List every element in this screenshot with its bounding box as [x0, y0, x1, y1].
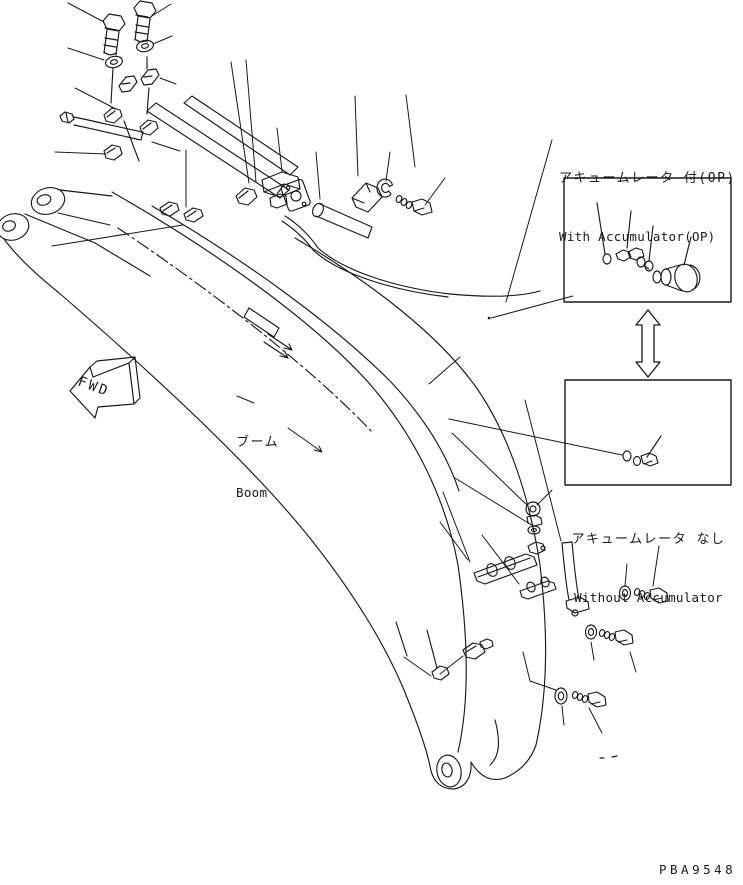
- without-accumulator-caption-ja: アキュームレータ なし: [565, 532, 732, 549]
- parts-diagram-page: FWD アキュームレータ 付(OP) With Accumulator(OP) …: [0, 0, 743, 885]
- plug: [634, 453, 659, 466]
- boom-caption-en: Boom: [236, 485, 279, 501]
- with-accumulator-caption-en: With Accumulator(OP): [559, 229, 736, 245]
- o-ring: [623, 451, 631, 461]
- bolt-washer-clamp-group-top: [60, 1, 180, 161]
- hose: [285, 216, 540, 296]
- hose: [282, 221, 448, 297]
- without-accumulator-caption: アキュームレータ なし Without Accumulator: [565, 490, 732, 627]
- boom-caption: ブーム Boom: [236, 401, 279, 519]
- without-accumulator-caption-en: Without Accumulator: [565, 590, 732, 606]
- fwd-arrow-icon: FWD: [70, 357, 140, 418]
- option-box-without-accumulator: [565, 380, 731, 485]
- fitting-cluster: [236, 172, 432, 215]
- boom-caption-ja: ブーム: [236, 435, 279, 452]
- boom-outline: [58, 192, 546, 766]
- with-accumulator-caption: アキュームレータ 付(OP) With Accumulator(OP): [559, 129, 736, 266]
- swap-double-arrow-icon: [636, 310, 660, 377]
- accumulator: [653, 262, 700, 295]
- with-accumulator-caption-ja: アキュームレータ 付(OP): [559, 171, 736, 188]
- drawing-number: PBA9548: [659, 862, 736, 878]
- boom-tip: [430, 720, 536, 789]
- hydraulic-tubes: [147, 96, 540, 297]
